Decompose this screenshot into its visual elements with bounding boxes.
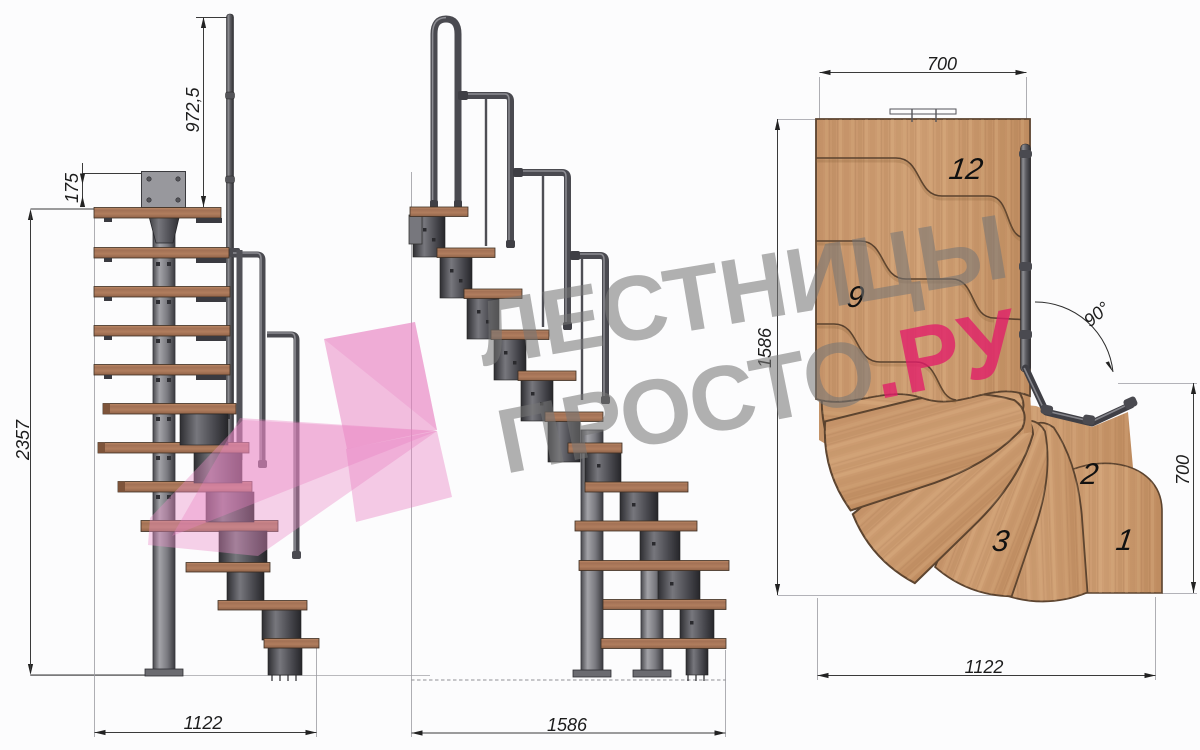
svg-text:12: 12: [947, 153, 985, 186]
svg-text:700: 700: [927, 54, 957, 74]
svg-text:2357: 2357: [13, 419, 33, 461]
svg-text:1122: 1122: [184, 713, 223, 733]
svg-text:1586: 1586: [547, 715, 588, 735]
svg-text:175: 175: [62, 172, 82, 203]
svg-text:972,5: 972,5: [183, 86, 203, 132]
svg-text:1122: 1122: [965, 657, 1004, 677]
svg-text:700: 700: [1173, 455, 1193, 485]
